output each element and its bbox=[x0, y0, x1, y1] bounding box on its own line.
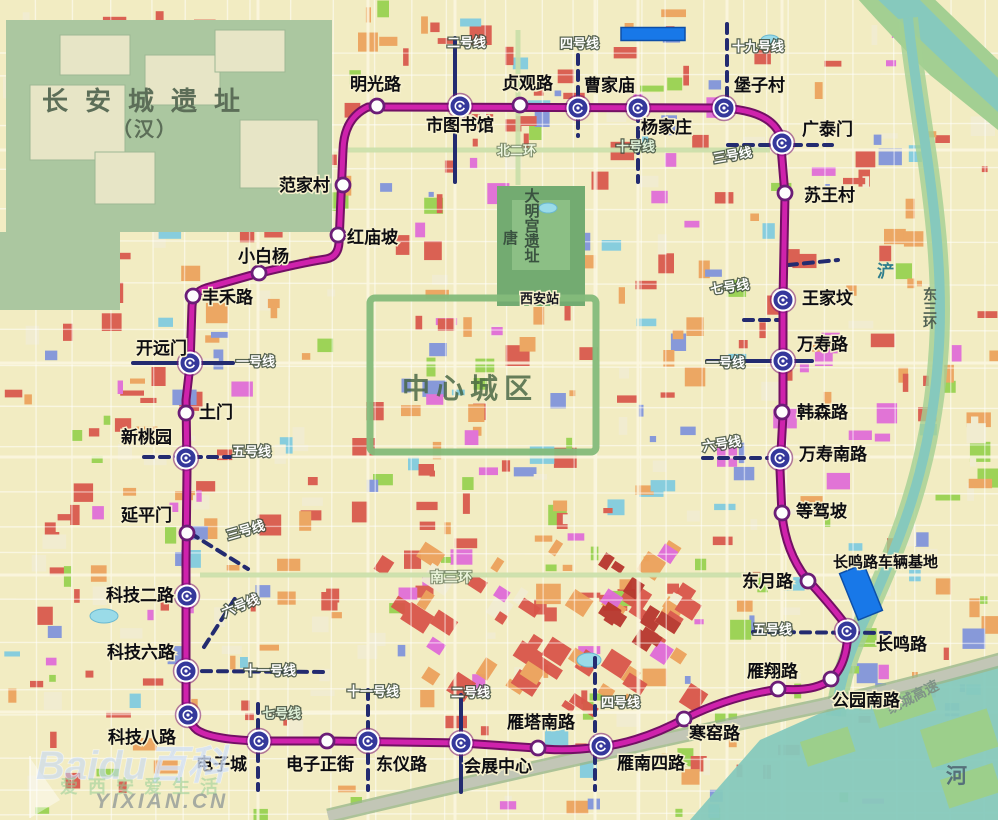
city-block bbox=[43, 535, 67, 549]
interchange-station-marker bbox=[589, 734, 614, 759]
interchange-station-marker bbox=[174, 659, 199, 684]
city-block bbox=[48, 626, 62, 638]
interchange-station-marker bbox=[768, 446, 793, 471]
city-block bbox=[550, 393, 566, 408]
city-block bbox=[275, 445, 286, 464]
metro-logo-dot bbox=[185, 594, 188, 597]
city-block bbox=[750, 214, 759, 222]
station-name-label: 寒窑路 bbox=[689, 723, 741, 743]
city-block bbox=[713, 537, 733, 546]
station-name-label: 土门 bbox=[199, 402, 233, 422]
city-block bbox=[120, 628, 142, 638]
station-marker bbox=[336, 178, 350, 192]
city-block bbox=[536, 584, 561, 604]
city-block bbox=[463, 493, 470, 514]
city-block bbox=[293, 427, 305, 445]
interchange-station-marker bbox=[770, 131, 795, 156]
city-block bbox=[886, 60, 896, 66]
metro-line-name-label: 五号线 bbox=[232, 444, 271, 459]
station-name-label: 堡子村 bbox=[734, 75, 785, 95]
interchange-station-marker bbox=[626, 96, 651, 121]
station-name-label: 公园南路 bbox=[832, 690, 901, 710]
area-label: 东三环 bbox=[922, 286, 938, 330]
city-block bbox=[424, 241, 442, 260]
city-block bbox=[651, 480, 676, 491]
metro-logo-dot bbox=[778, 456, 781, 459]
metro-line-name-label: 一号线 bbox=[706, 355, 745, 370]
xian-metro-loop-map: 二号线四号线十九号线十号线三号线七号线一号线六号线五号线四号线二号线十一号线七号… bbox=[0, 0, 998, 820]
interchange-station-marker bbox=[174, 446, 199, 471]
station-dot bbox=[775, 405, 789, 419]
station-dot bbox=[331, 228, 345, 242]
station-name-label: 延平门 bbox=[120, 505, 172, 525]
city-block bbox=[687, 511, 700, 522]
station-dot bbox=[252, 266, 266, 280]
station-name-label: 万寿路 bbox=[796, 334, 849, 354]
station-marker bbox=[824, 672, 838, 686]
metro-line-name-label: 二号线 bbox=[447, 35, 486, 50]
metro-line-name-label: 四号线 bbox=[560, 36, 599, 51]
city-block bbox=[685, 676, 691, 684]
city-block bbox=[534, 474, 547, 480]
area-label: （汉） bbox=[112, 118, 178, 141]
city-block bbox=[879, 246, 891, 262]
metro-line-name-label: 一号线 bbox=[236, 354, 275, 369]
station-name-label: 明光路 bbox=[350, 74, 402, 94]
station-name-label: 科技六路 bbox=[107, 642, 176, 662]
city-block bbox=[32, 555, 46, 572]
area-label: 北二环 bbox=[497, 143, 536, 158]
city-block bbox=[640, 86, 664, 92]
city-block bbox=[881, 133, 898, 139]
station-marker bbox=[180, 526, 194, 540]
interchange-station-marker bbox=[449, 731, 474, 756]
station-name-label: 万寿南路 bbox=[798, 444, 868, 464]
station-marker bbox=[179, 406, 193, 420]
city-block bbox=[24, 394, 32, 404]
metro-logo-dot bbox=[257, 739, 260, 742]
station-marker bbox=[531, 741, 545, 755]
metro-logo-dot bbox=[366, 739, 369, 742]
metro-logo-dot bbox=[458, 104, 461, 107]
pond bbox=[539, 203, 557, 213]
station-name-label: 小白杨 bbox=[238, 246, 289, 266]
city-block bbox=[460, 19, 481, 27]
city-block bbox=[211, 332, 228, 338]
area-label: 大明宫遗址 bbox=[523, 187, 541, 263]
city-block bbox=[751, 519, 758, 530]
city-block bbox=[963, 629, 986, 649]
city-block bbox=[871, 334, 895, 348]
city-block bbox=[430, 23, 439, 33]
city-block bbox=[694, 619, 703, 624]
city-block bbox=[989, 351, 998, 362]
city-block bbox=[86, 671, 94, 678]
city-block bbox=[907, 279, 914, 289]
city-block bbox=[529, 126, 541, 140]
station-dot bbox=[775, 506, 789, 520]
city-block bbox=[63, 324, 73, 341]
city-block bbox=[686, 317, 703, 336]
city-block bbox=[969, 479, 992, 488]
city-block bbox=[563, 565, 573, 571]
station-marker bbox=[513, 98, 527, 112]
metro-line-name-label: 五号线 bbox=[753, 622, 792, 637]
interchange-station-marker bbox=[247, 729, 272, 754]
station-marker bbox=[778, 186, 792, 200]
metro-logo-dot bbox=[780, 141, 783, 144]
interchange-station-marker bbox=[771, 288, 796, 313]
city-block bbox=[415, 223, 425, 238]
city-block bbox=[165, 527, 176, 544]
city-block bbox=[230, 656, 235, 670]
station-name-label: 韩森路 bbox=[797, 402, 849, 422]
road bbox=[411, 0, 412, 820]
city-block bbox=[379, 37, 397, 46]
city-block bbox=[368, 633, 386, 646]
city-block bbox=[89, 428, 99, 436]
city-block bbox=[619, 368, 629, 379]
city-block bbox=[312, 617, 329, 633]
station-dot bbox=[370, 99, 384, 113]
interchange-station-marker bbox=[448, 94, 473, 119]
city-block bbox=[487, 633, 495, 639]
city-block bbox=[502, 460, 510, 471]
city-block bbox=[715, 192, 734, 203]
city-block bbox=[380, 183, 392, 192]
station-name-label: 开远门 bbox=[136, 338, 187, 358]
metro-logo-dot bbox=[845, 629, 848, 632]
metro-line-name-label: 二号线 bbox=[451, 685, 490, 700]
city-block bbox=[684, 221, 699, 228]
city-block bbox=[454, 538, 477, 548]
watermark-site: YIXIAN.CN bbox=[95, 790, 228, 813]
station-name-label: 长鸣路 bbox=[876, 634, 928, 654]
area-label: 中心城区 bbox=[402, 373, 538, 404]
city-block bbox=[462, 477, 473, 490]
map-canvas: 二号线四号线十九号线十号线三号线七号线一号线六号线五号线四号线二号线十一号线七号… bbox=[0, 0, 998, 820]
city-block bbox=[978, 311, 998, 318]
metro-line-name-label: 十一号线 bbox=[347, 684, 399, 699]
city-block bbox=[514, 467, 537, 476]
station-name-label: 红庙坡 bbox=[347, 227, 398, 247]
city-block bbox=[429, 343, 447, 356]
city-block bbox=[683, 66, 689, 86]
city-block bbox=[473, 139, 478, 147]
area-label: 南三环 bbox=[430, 569, 472, 585]
city-block bbox=[44, 692, 62, 710]
city-block bbox=[650, 436, 656, 442]
station-name-label: 曹家庙 bbox=[584, 75, 635, 95]
city-block bbox=[872, 25, 878, 45]
metro-line-name-label: 十一号线 bbox=[244, 663, 296, 678]
metro-logo-dot bbox=[781, 359, 784, 362]
city-block bbox=[302, 498, 323, 506]
station-name-label: 东月路 bbox=[742, 571, 794, 591]
city-block bbox=[673, 330, 684, 339]
city-block bbox=[903, 374, 909, 392]
city-block bbox=[45, 351, 57, 361]
city-block bbox=[470, 158, 477, 168]
city-block bbox=[326, 589, 339, 603]
city-block bbox=[130, 694, 141, 708]
city-block bbox=[546, 565, 557, 572]
station-name-label: 科技二路 bbox=[106, 585, 175, 605]
station-name-label: 范家村 bbox=[279, 175, 330, 195]
metro-logo-dot bbox=[636, 106, 639, 109]
city-block bbox=[849, 543, 863, 551]
station-dot bbox=[336, 178, 350, 192]
city-block bbox=[463, 317, 472, 337]
station-name-label: 雁翔路 bbox=[747, 661, 799, 681]
city-block bbox=[566, 438, 572, 450]
city-block bbox=[416, 502, 437, 510]
city-block bbox=[92, 506, 104, 519]
station-marker bbox=[775, 405, 789, 419]
station-marker bbox=[370, 99, 384, 113]
interchange-station-marker bbox=[356, 729, 381, 754]
metro-logo-dot bbox=[186, 713, 189, 716]
metro-logo-dot bbox=[459, 741, 462, 744]
city-block bbox=[8, 689, 16, 703]
metro-logo-dot bbox=[184, 456, 187, 459]
area-label: 唐 bbox=[503, 229, 518, 247]
station-name-label: 会展中心 bbox=[464, 756, 532, 776]
station-dot bbox=[186, 289, 200, 303]
city-block bbox=[120, 391, 144, 396]
city-block bbox=[874, 135, 882, 145]
city-block bbox=[680, 427, 695, 436]
city-block bbox=[617, 395, 637, 402]
city-block bbox=[875, 434, 890, 442]
city-block bbox=[709, 80, 722, 89]
city-block bbox=[952, 345, 962, 362]
city-block bbox=[730, 620, 751, 640]
area-label: 河 bbox=[946, 765, 967, 788]
station-name-label: 电子正街 bbox=[286, 754, 354, 774]
city-block bbox=[430, 471, 435, 477]
station-name-label: 市图书馆 bbox=[426, 115, 494, 135]
city-block bbox=[408, 457, 419, 470]
city-block bbox=[37, 607, 52, 625]
city-block bbox=[935, 135, 950, 143]
city-block bbox=[420, 690, 434, 707]
city-block bbox=[815, 82, 823, 99]
station-dot bbox=[824, 672, 838, 686]
city-block bbox=[944, 648, 949, 660]
city-block bbox=[555, 91, 562, 97]
city-block bbox=[222, 646, 242, 654]
city-block bbox=[475, 359, 494, 373]
city-block bbox=[896, 263, 912, 279]
city-block bbox=[437, 194, 443, 213]
city-block bbox=[102, 313, 122, 331]
city-block bbox=[327, 289, 335, 296]
station-name-label: 苏王村 bbox=[804, 185, 855, 205]
city-block bbox=[915, 532, 929, 547]
metro-logo-dot bbox=[781, 298, 784, 301]
hancheng-heritage-zone bbox=[0, 232, 120, 310]
metro-logo-dot bbox=[576, 106, 579, 109]
city-block bbox=[4, 651, 20, 656]
interchange-station-marker bbox=[835, 619, 860, 644]
metro-line-name-label: 十九号线 bbox=[732, 39, 784, 54]
interchange-station-marker bbox=[176, 703, 201, 728]
city-block bbox=[568, 533, 585, 540]
city-block bbox=[544, 607, 556, 621]
metro-logo-dot bbox=[184, 669, 187, 672]
city-block bbox=[603, 508, 612, 513]
city-block bbox=[338, 786, 356, 793]
station-marker bbox=[775, 506, 789, 520]
city-block bbox=[849, 321, 874, 329]
city-block bbox=[619, 287, 625, 304]
city-block bbox=[653, 461, 667, 473]
city-block bbox=[147, 610, 153, 620]
city-block bbox=[260, 645, 279, 651]
city-block bbox=[857, 663, 878, 683]
area-label: 西安站 bbox=[520, 291, 559, 306]
city-block bbox=[520, 337, 536, 352]
city-block bbox=[104, 416, 111, 425]
city-block bbox=[465, 430, 479, 445]
station-marker bbox=[186, 289, 200, 303]
area-label: 长鸣路车辆基地 bbox=[833, 553, 938, 571]
city-block bbox=[331, 612, 342, 618]
city-block bbox=[72, 430, 82, 441]
station-marker bbox=[331, 228, 345, 242]
city-block bbox=[665, 153, 676, 167]
city-block bbox=[936, 578, 951, 594]
city-block bbox=[416, 316, 423, 330]
city-block bbox=[46, 658, 57, 666]
city-block bbox=[93, 587, 107, 605]
city-block bbox=[299, 511, 311, 531]
city-block bbox=[563, 514, 570, 524]
city-block bbox=[879, 665, 889, 680]
city-block bbox=[144, 453, 167, 465]
city-block bbox=[377, 1, 389, 18]
city-block bbox=[352, 502, 368, 523]
interchange-station-marker bbox=[566, 96, 591, 121]
metro-line-name-label: 四号线 bbox=[601, 695, 640, 710]
city-block bbox=[118, 381, 123, 395]
city-block bbox=[5, 390, 23, 398]
city-block bbox=[705, 270, 722, 277]
station-marker bbox=[801, 574, 815, 588]
city-block bbox=[268, 299, 280, 308]
city-block bbox=[849, 431, 872, 441]
station-name-label: 新桃园 bbox=[121, 427, 172, 447]
city-block bbox=[398, 645, 406, 657]
station-name-label: 等驾坡 bbox=[796, 501, 847, 521]
city-block bbox=[856, 151, 876, 168]
city-block bbox=[196, 481, 215, 491]
interchange-station-marker bbox=[712, 96, 737, 121]
city-block bbox=[158, 318, 173, 327]
city-block bbox=[824, 61, 841, 67]
city-block bbox=[739, 340, 748, 348]
city-block bbox=[703, 758, 710, 775]
metro-logo-dot bbox=[599, 744, 602, 747]
city-block bbox=[553, 501, 567, 512]
city-block bbox=[637, 176, 658, 188]
station-name-label: 广泰门 bbox=[802, 119, 853, 139]
city-block bbox=[761, 382, 779, 401]
city-block bbox=[479, 467, 498, 475]
station-marker bbox=[252, 266, 266, 280]
station-name-label: 贞观路 bbox=[502, 73, 554, 93]
station-name-label: 雁南四路 bbox=[617, 753, 686, 773]
station-dot bbox=[320, 734, 334, 748]
city-block bbox=[74, 589, 80, 603]
city-block bbox=[763, 223, 775, 239]
city-block bbox=[843, 178, 865, 184]
station-dot bbox=[179, 406, 193, 420]
heritage-field bbox=[60, 35, 130, 75]
city-block bbox=[23, 12, 30, 20]
city-block bbox=[403, 48, 409, 66]
interchange-station-marker bbox=[175, 584, 200, 609]
city-block bbox=[970, 459, 976, 467]
pond bbox=[577, 653, 601, 667]
city-block bbox=[667, 78, 682, 91]
station-dot bbox=[801, 574, 815, 588]
metro-logo-dot bbox=[722, 106, 725, 109]
city-block bbox=[936, 495, 961, 501]
city-block bbox=[619, 417, 628, 435]
station-dot bbox=[771, 682, 785, 696]
city-block bbox=[421, 16, 428, 33]
station-marker bbox=[320, 734, 334, 748]
area-label: 长安城遗址 bbox=[42, 86, 257, 116]
interchange-station-marker bbox=[771, 349, 796, 374]
city-block bbox=[429, 192, 434, 197]
city-block bbox=[317, 339, 333, 353]
station-dot bbox=[513, 98, 527, 112]
heritage-field bbox=[95, 152, 155, 204]
station-marker bbox=[771, 682, 785, 696]
city-block bbox=[567, 801, 589, 814]
city-block bbox=[308, 477, 318, 485]
heritage-field bbox=[215, 30, 285, 72]
area-label: 浐 bbox=[877, 261, 894, 281]
city-block bbox=[714, 504, 735, 510]
city-block bbox=[827, 473, 850, 490]
city-block bbox=[130, 379, 145, 384]
station-name-label: 王家坟 bbox=[802, 288, 853, 308]
metro-line-name-label: 十号线 bbox=[616, 139, 655, 154]
city-block bbox=[143, 678, 163, 685]
city-block bbox=[49, 675, 56, 682]
metro-line-name-label: 七号线 bbox=[262, 706, 301, 721]
city-block bbox=[491, 327, 502, 335]
station-name-label: 雁塔南路 bbox=[507, 712, 576, 732]
metro-logo-dot bbox=[188, 361, 191, 364]
city-block bbox=[302, 353, 310, 360]
city-block bbox=[278, 592, 296, 605]
city-block bbox=[661, 392, 675, 397]
pond bbox=[90, 609, 118, 623]
city-block bbox=[967, 423, 986, 443]
city-block bbox=[877, 403, 897, 423]
station-name-label: 杨家庄 bbox=[641, 117, 692, 137]
station-name-label: 丰禾路 bbox=[202, 287, 254, 307]
station-name-label: 东仪路 bbox=[376, 754, 428, 774]
city-block bbox=[287, 720, 303, 736]
city-block bbox=[558, 70, 574, 84]
station-dot bbox=[531, 741, 545, 755]
